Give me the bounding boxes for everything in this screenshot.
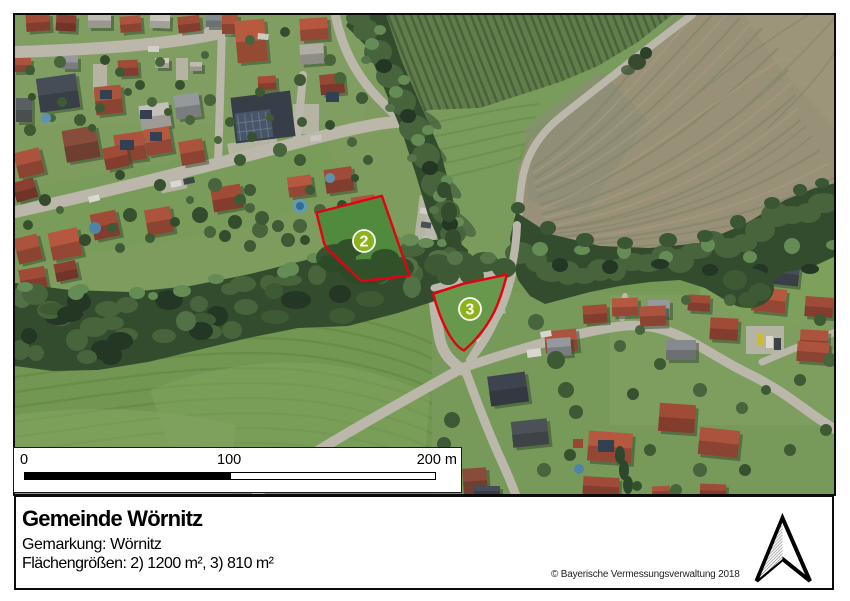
svg-text:2: 2 — [360, 234, 369, 251]
svg-text:3: 3 — [466, 302, 475, 319]
